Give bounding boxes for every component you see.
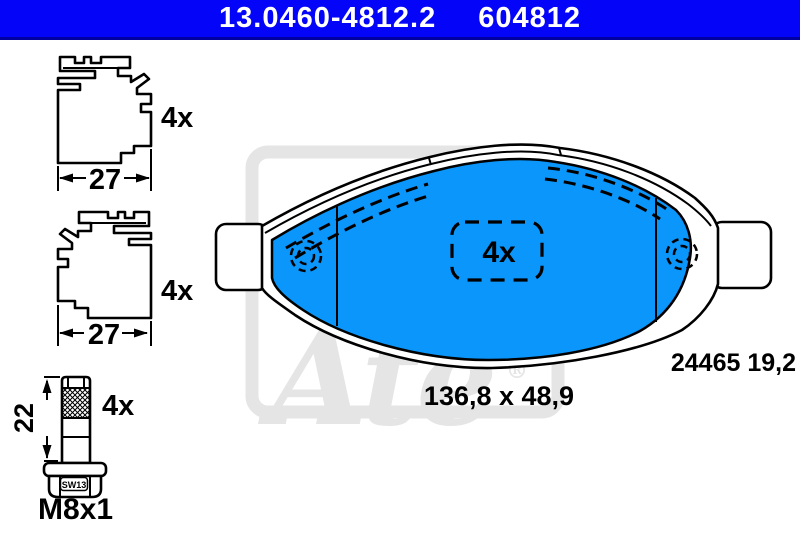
clip-top-outline: [58, 57, 151, 163]
bolt-qty: 4x: [102, 390, 134, 422]
clip-bottom-dimension: 27: [88, 319, 120, 351]
bolt-drawing: SW13 22 4x M8x1: [9, 377, 134, 526]
pad-left-lug: [216, 224, 268, 290]
pad-dimensions: 136,8 x 48,9: [424, 381, 574, 411]
clip-bottom-drawing: 27 4x: [58, 212, 193, 351]
clip-top-qty: 4x: [161, 102, 193, 134]
clip-bottom-qty: 4x: [161, 275, 193, 307]
catalog-image: 13.0460-4812.2 604812 Ate ® 27 4x: [0, 0, 800, 533]
dim-arrow-left: [59, 174, 73, 183]
clip-bottom-outline: [58, 212, 151, 318]
pad-qty: 4x: [482, 236, 516, 269]
dim-arrow-right: [134, 329, 148, 338]
technical-drawing: Ate ® 27 4x 27 4x: [0, 0, 800, 533]
dim-arrow-down: [43, 445, 52, 459]
dim-arrow-up: [43, 379, 52, 393]
bolt-flange: [44, 463, 106, 476]
pad-wva-thickness: 24465 19,2: [671, 349, 796, 377]
bolt-length-dimension: 22: [9, 403, 39, 433]
wrench-size-label: SW13: [62, 480, 87, 490]
dim-arrow-left: [59, 329, 73, 338]
clip-top-drawing: 27 4x: [58, 57, 193, 196]
bolt-thread-label: M8x1: [38, 493, 113, 526]
clip-top-dimension: 27: [89, 164, 121, 196]
dim-arrow-right: [136, 174, 150, 183]
bolt-knurl: [62, 388, 90, 418]
pad-right-lug: [712, 222, 771, 288]
